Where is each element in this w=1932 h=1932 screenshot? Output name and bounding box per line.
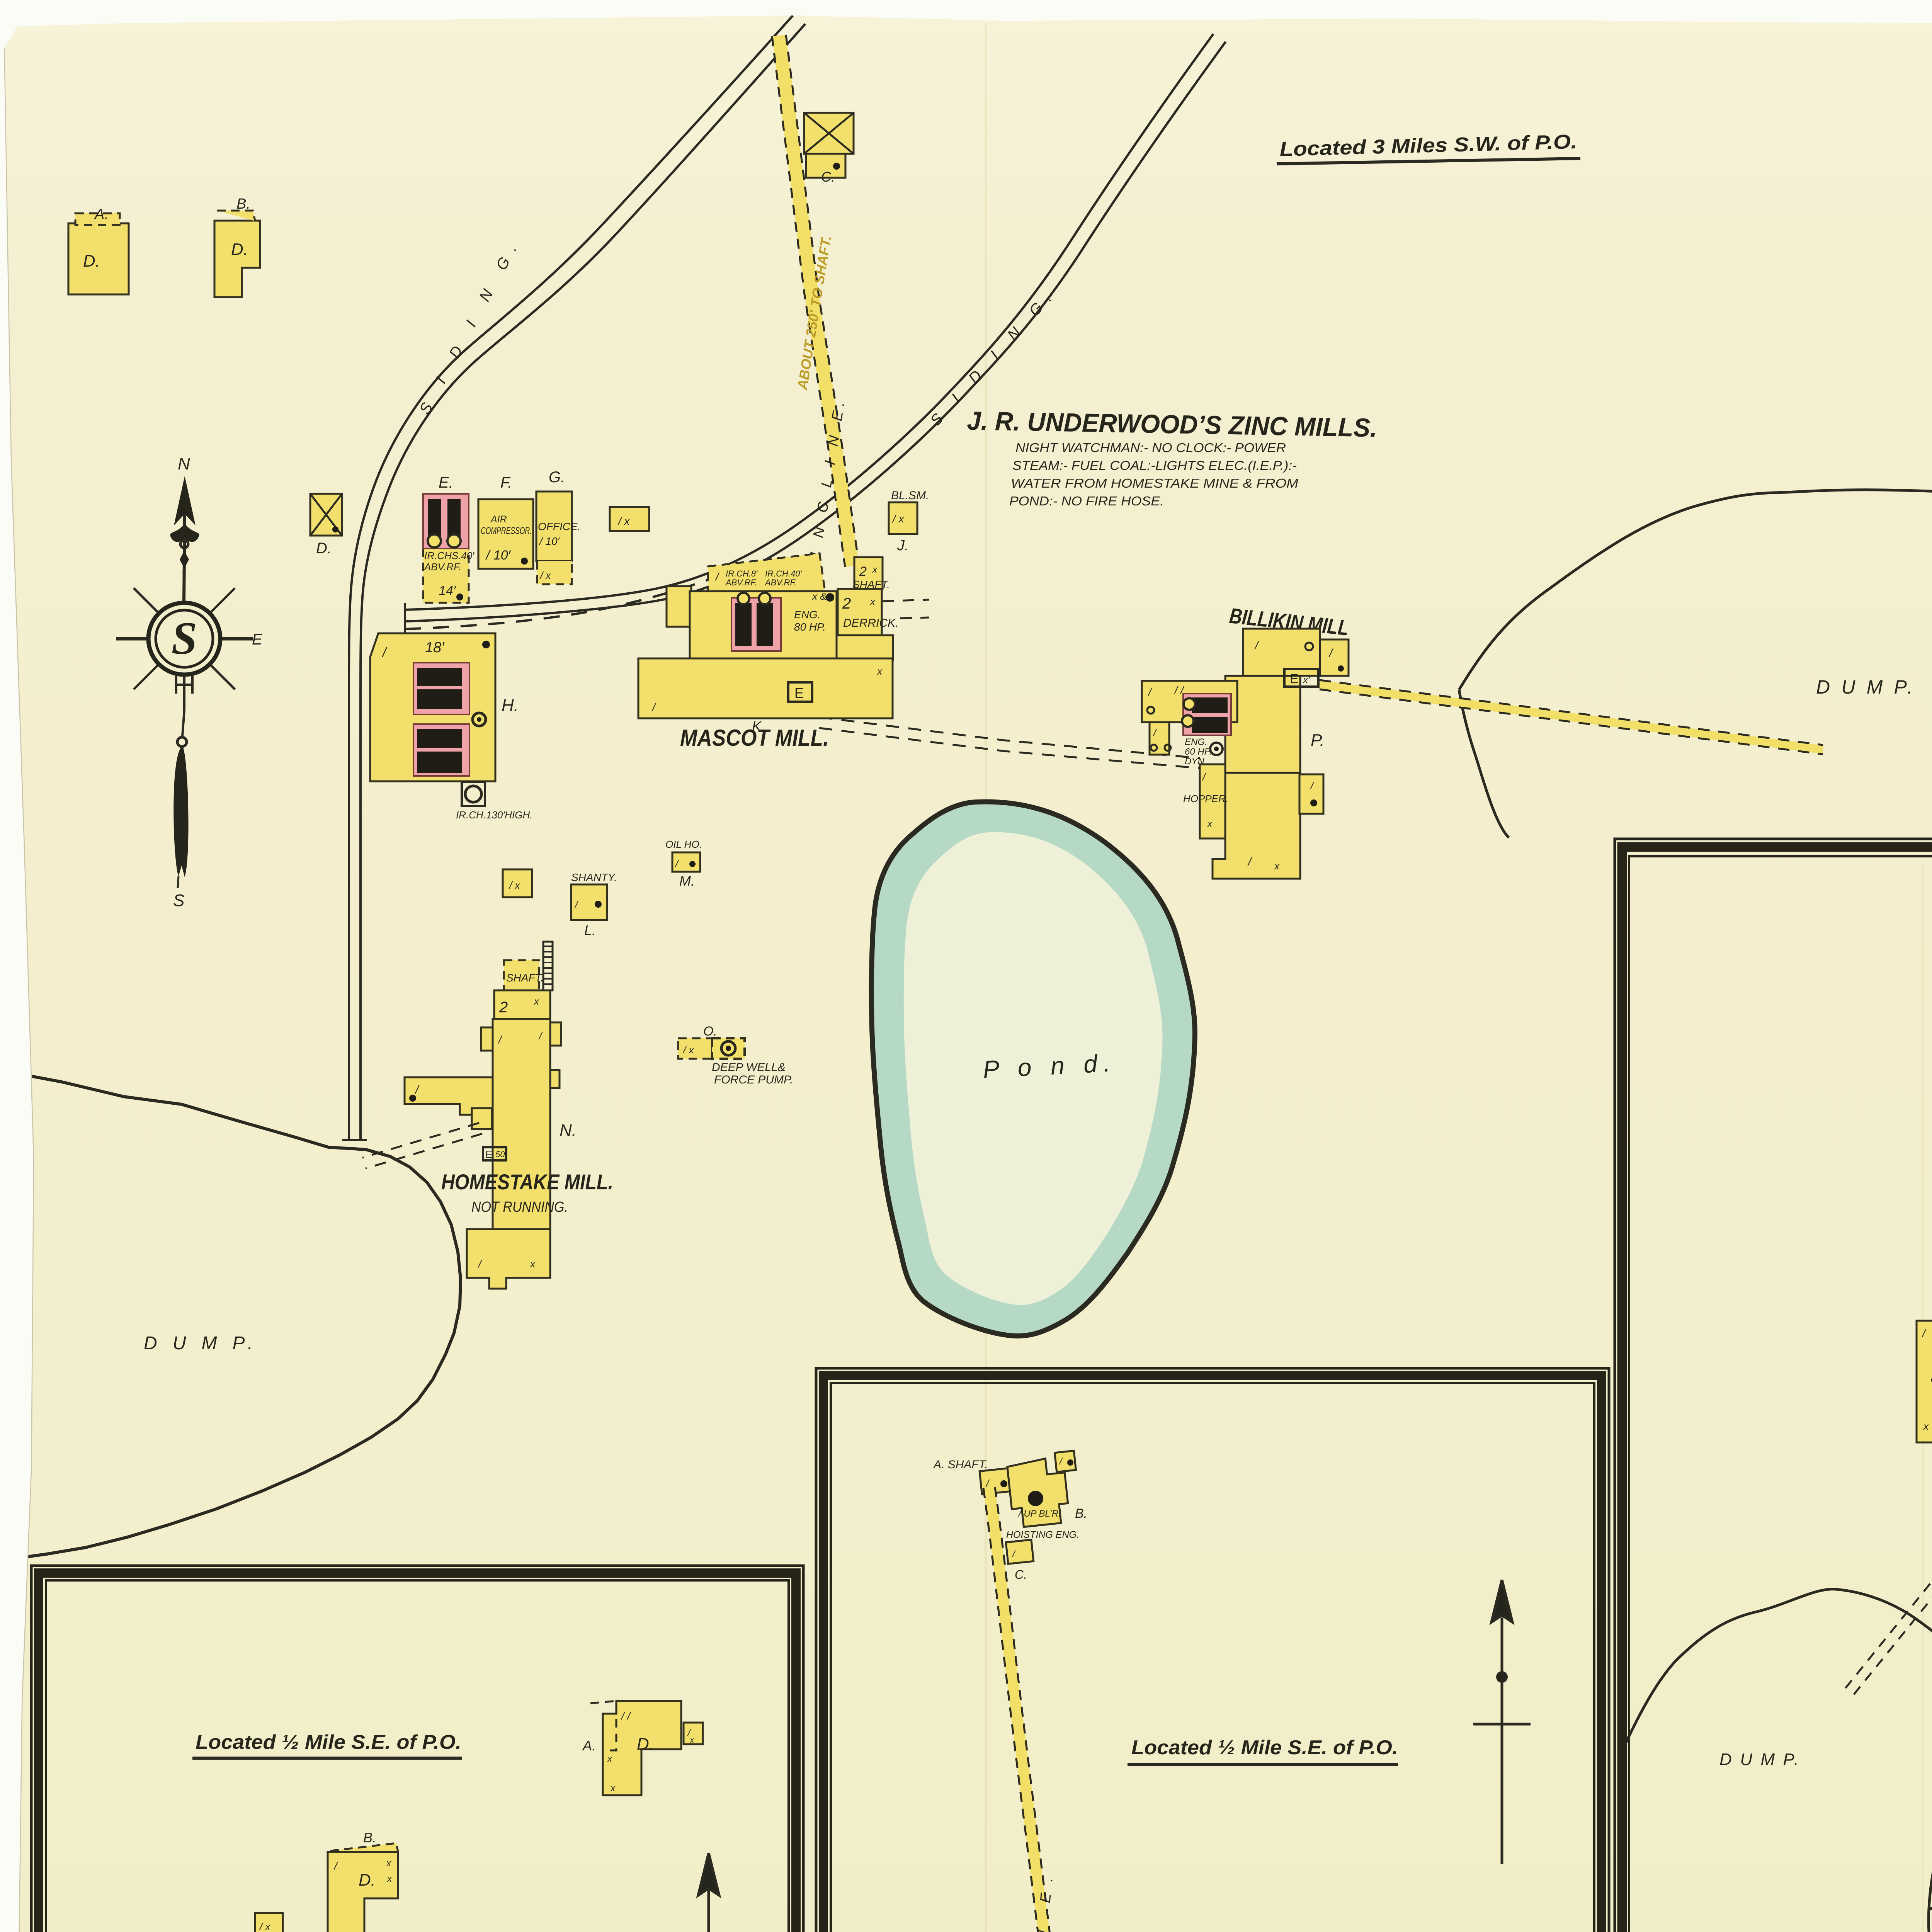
svg-text:2: 2 [842, 595, 851, 612]
svg-text:2: 2 [859, 564, 867, 579]
svg-text:/ x: / x [617, 515, 630, 527]
svg-text:S: S [172, 612, 197, 664]
svg-text:HOPPER.: HOPPER. [1183, 793, 1228, 804]
svg-text:IR.CHS.40′: IR.CHS.40′ [424, 550, 474, 561]
svg-text:MASCOT MILL.: MASCOT MILL. [680, 725, 829, 751]
svg-text:F.: F. [500, 474, 512, 491]
svg-text:E.: E. [439, 474, 453, 491]
svg-text:/ x: / x [509, 879, 520, 891]
svg-text:HOMESTAKE MILL.: HOMESTAKE MILL. [441, 1170, 613, 1194]
svg-text:N.: N. [560, 1121, 577, 1140]
svg-text:x: x [1923, 1420, 1929, 1432]
svg-text:COMPRESSOR.: COMPRESSOR. [481, 526, 532, 536]
svg-text:IR.CH.130′HIGH.: IR.CH.130′HIGH. [456, 809, 532, 821]
svg-text:WATER FROM HOMESTAKE MINE & FR: WATER FROM HOMESTAKE MINE & FROM [1011, 476, 1299, 490]
svg-text:D.: D. [359, 1871, 376, 1889]
svg-text:/ /: / / [621, 1710, 632, 1722]
svg-text:E: E [485, 1148, 493, 1160]
svg-text:14′: 14′ [439, 583, 456, 598]
svg-text:x: x [610, 1783, 616, 1794]
svg-text:B.: B. [236, 196, 250, 212]
svg-text:D.: D. [231, 240, 248, 259]
svg-text:E: E [252, 631, 263, 648]
svg-text:P.: P. [1311, 731, 1325, 750]
svg-text:STEAM:- FUEL COAL:-LIGHTS ELEC: STEAM:- FUEL COAL:-LIGHTS ELEC.(I.E.P.):… [1012, 458, 1297, 473]
svg-text:D.: D. [637, 1735, 654, 1753]
svg-text:D.: D. [83, 252, 100, 270]
svg-text:OFFICE.: OFFICE. [538, 520, 580, 532]
svg-text:ABV.RF.: ABV.RF. [725, 578, 757, 587]
svg-text:A.: A. [94, 206, 109, 223]
svg-text:Located ½ Mile S.E. of P.O.: Located ½ Mile S.E. of P.O. [196, 1731, 461, 1753]
svg-text:B.: B. [1075, 1506, 1087, 1521]
svg-text:IR.CH.40′: IR.CH.40′ [765, 569, 802, 578]
svg-text:x: x [690, 1736, 694, 1745]
svg-text:ABV.RF.: ABV.RF. [423, 561, 461, 573]
svg-text:ENG.: ENG. [794, 609, 820, 621]
svg-text:SHAFT.: SHAFT. [506, 972, 544, 984]
svg-text:D.: D. [316, 540, 332, 557]
svg-text:SHANTY.: SHANTY. [571, 871, 617, 883]
svg-text:Located ½ Mile S.E. of P.O.: Located ½ Mile S.E. of P.O. [1131, 1736, 1398, 1759]
svg-text:E: E [1290, 672, 1299, 686]
svg-text:x′: x′ [1302, 674, 1310, 685]
svg-text:N: N [178, 454, 190, 473]
svg-text:B.: B. [363, 1830, 376, 1845]
svg-text:18′: 18′ [425, 639, 445, 656]
svg-text:NOT RUNNING.: NOT RUNNING. [471, 1199, 568, 1215]
svg-text:/ x: / x [259, 1921, 270, 1932]
svg-text:A.: A. [582, 1738, 596, 1753]
svg-text:S: S [173, 891, 184, 910]
svg-text:O.: O. [703, 1024, 717, 1039]
svg-text:H.: H. [502, 696, 519, 715]
svg-text:G.: G. [549, 469, 565, 486]
svg-text:E: E [794, 685, 804, 701]
svg-text:/ UP BL’R.: / UP BL’R. [1018, 1509, 1061, 1519]
svg-text:C.: C. [1015, 1568, 1027, 1582]
svg-text:FORCE PUMP.: FORCE PUMP. [714, 1073, 793, 1086]
svg-text:A. SHAFT.: A. SHAFT. [933, 1458, 988, 1471]
svg-text:x &: x & [811, 590, 827, 602]
svg-text:50′: 50′ [495, 1150, 507, 1159]
svg-text:/ x: / x [682, 1044, 694, 1056]
svg-text:NIGHT WATCHMAN:- NO CLOCK:- PO: NIGHT WATCHMAN:- NO CLOCK:- POWER [1015, 440, 1286, 455]
svg-text:M.: M. [679, 873, 695, 889]
svg-text:ENG.: ENG. [1185, 737, 1207, 747]
svg-text:L.: L. [584, 922, 596, 938]
svg-text:J.: J. [897, 537, 909, 554]
svg-text:POND:- NO FIRE HOSE.: POND:- NO FIRE HOSE. [1009, 494, 1164, 508]
svg-text:AIR: AIR [490, 514, 507, 525]
svg-text:x: x [386, 1858, 391, 1869]
svg-text:x: x [387, 1874, 392, 1884]
svg-text:x: x [607, 1754, 612, 1764]
svg-text:/ x: / x [539, 570, 551, 581]
svg-text:80 HP.: 80 HP. [794, 621, 826, 633]
svg-text:ABV.RF.: ABV.RF. [764, 578, 796, 587]
svg-text:DEEP WELL&: DEEP WELL& [712, 1061, 786, 1074]
svg-text:x: x [1274, 860, 1280, 872]
svg-text:x: x [876, 665, 883, 677]
svg-text:HOISTING ENG.: HOISTING ENG. [1006, 1529, 1079, 1540]
svg-text:x: x [869, 596, 876, 607]
svg-text:x: x [872, 565, 878, 575]
svg-text:IR.CH.8′: IR.CH.8′ [726, 569, 758, 578]
svg-text:x: x [529, 1258, 536, 1270]
svg-text:2: 2 [499, 999, 508, 1016]
svg-text:C.: C. [821, 169, 835, 185]
svg-text:x: x [533, 995, 539, 1007]
svg-text:x: x [1207, 819, 1213, 829]
svg-text:OIL HO.: OIL HO. [665, 838, 702, 850]
svg-text:60 HP.: 60 HP. [1185, 747, 1212, 757]
svg-text:/ 10′: / 10′ [485, 548, 511, 563]
svg-text:/ 10′: / 10′ [539, 535, 560, 547]
svg-text:BL.SM.: BL.SM. [891, 489, 929, 502]
svg-text:DERRICK.: DERRICK. [843, 617, 898, 629]
